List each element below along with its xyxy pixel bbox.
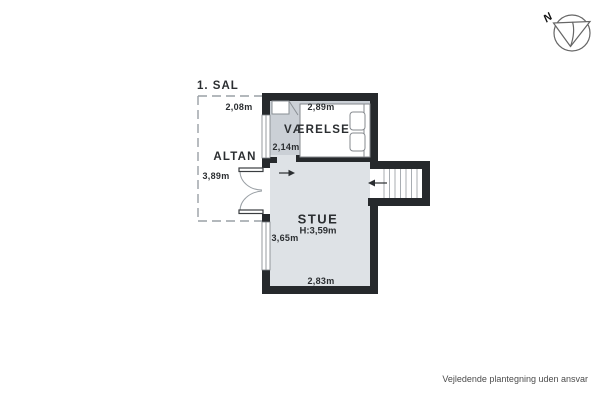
room-label-stue: STUE — [298, 212, 339, 227]
wall-right-lower — [370, 198, 378, 294]
window-icon — [262, 222, 270, 270]
dimension-altan-width: 2,08m — [225, 102, 252, 112]
window-icon — [262, 115, 270, 158]
wall-left-b — [262, 158, 270, 168]
dimension-stue-ceiling-height: H:3,59m — [300, 226, 337, 237]
wall-stair-top — [370, 161, 430, 169]
wall-top — [262, 93, 378, 101]
wall-bottom — [262, 286, 378, 294]
floorplan-drawing — [0, 0, 600, 400]
dimension-stue-width: 2,83m — [307, 276, 334, 286]
dimension-vaerelse-width: 2,89m — [307, 102, 334, 112]
wall-right-upper — [370, 93, 378, 161]
wall-left-c — [262, 214, 270, 222]
north-compass-icon — [554, 15, 591, 51]
floorplan-canvas: 1. SAL 2,08m 2,89m VÆRELSE 2,14m ALTAN 3… — [0, 0, 600, 400]
floor-title: 1. SAL — [197, 80, 239, 92]
dimension-stue-depth: 3,65m — [271, 233, 298, 243]
room-label-altan: ALTAN — [213, 151, 256, 163]
dimension-altan-length: 3,89m — [202, 171, 229, 181]
dimension-vaerelse-depth: 2,14m — [272, 142, 299, 152]
wall-left-a — [262, 93, 270, 115]
windows — [262, 115, 270, 270]
balcony-double-door-icon — [239, 168, 263, 214]
footer-disclaimer: Vejledende plantegning uden ansvar — [442, 374, 588, 384]
wall-left-tab — [270, 157, 277, 163]
room-label-vaerelse: VÆRELSE — [284, 124, 350, 136]
